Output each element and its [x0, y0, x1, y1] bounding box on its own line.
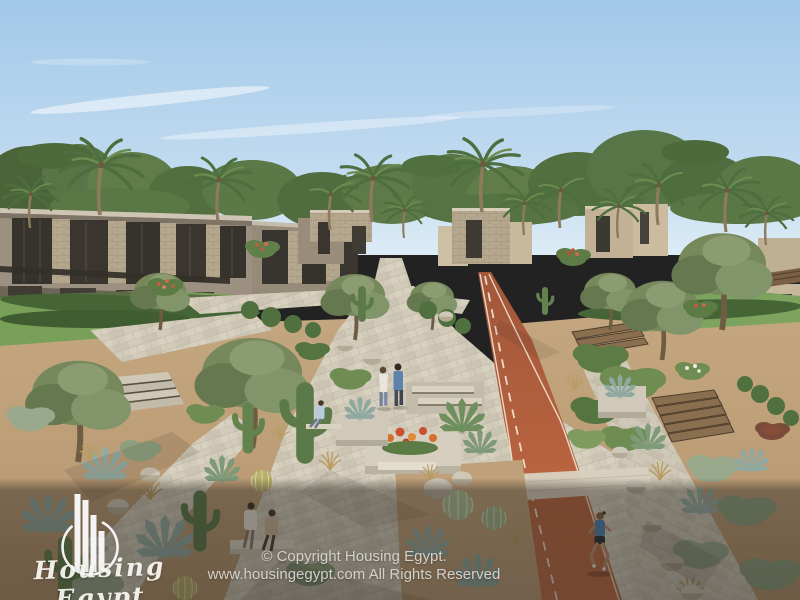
- copyright-line-2: www.housingegypt.com All Rights Reserved: [196, 566, 512, 584]
- copyright-line-1: © Copyright Housing Egypt.: [196, 548, 512, 566]
- saguaro-cactus: [538, 290, 553, 312]
- stone-villa-center: [298, 210, 372, 264]
- render-image: Housing Egypt © Copyright Housing Egypt.…: [0, 0, 800, 600]
- copyright-notice: © Copyright Housing Egypt. www.housingeg…: [196, 548, 512, 584]
- watermark-brand-text: Housing Egypt: [0, 551, 201, 600]
